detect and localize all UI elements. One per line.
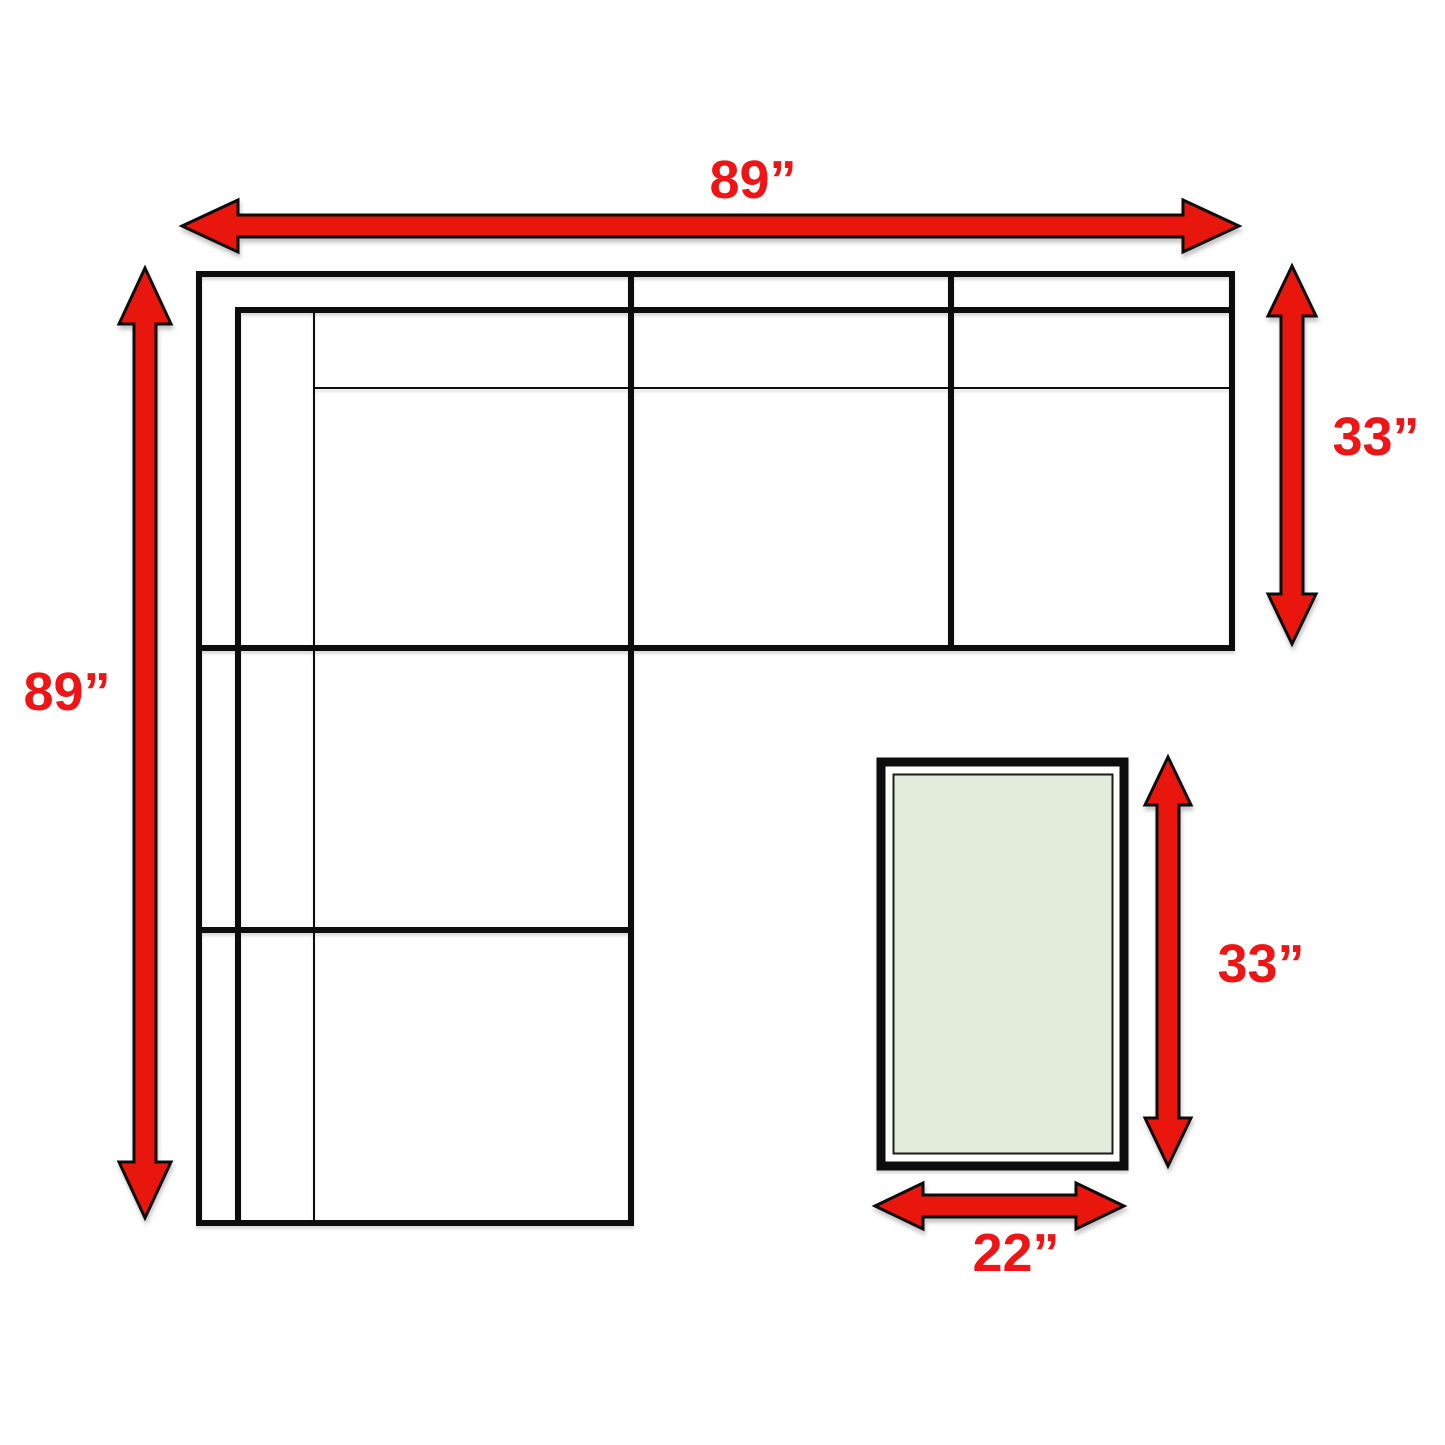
sectional-left-depth-label: 89” — [23, 662, 110, 722]
sectional-left-depth-arrow — [119, 268, 171, 1218]
ottoman-shape — [881, 762, 1124, 1166]
dimension-labels: 89” 89” 33” 33” 22” — [23, 150, 1419, 1283]
ottoman-cushion-top — [894, 775, 1113, 1154]
sectional-dimension-drawing: 89” 89” 33” 33” 22” — [0, 0, 1445, 1445]
sectional-right-depth-arrow — [1268, 266, 1316, 644]
ottoman-width-label: 22” — [972, 1223, 1059, 1283]
sectional-right-depth-label: 33” — [1332, 407, 1419, 467]
sectional-width-label: 89” — [709, 150, 796, 210]
dimension-arrows — [119, 200, 1316, 1229]
dimension-diagram: 89” 89” 33” 33” 22” — [0, 0, 1445, 1445]
ottoman-depth-label: 33” — [1217, 934, 1304, 994]
ottoman-depth-arrow — [1145, 757, 1191, 1166]
